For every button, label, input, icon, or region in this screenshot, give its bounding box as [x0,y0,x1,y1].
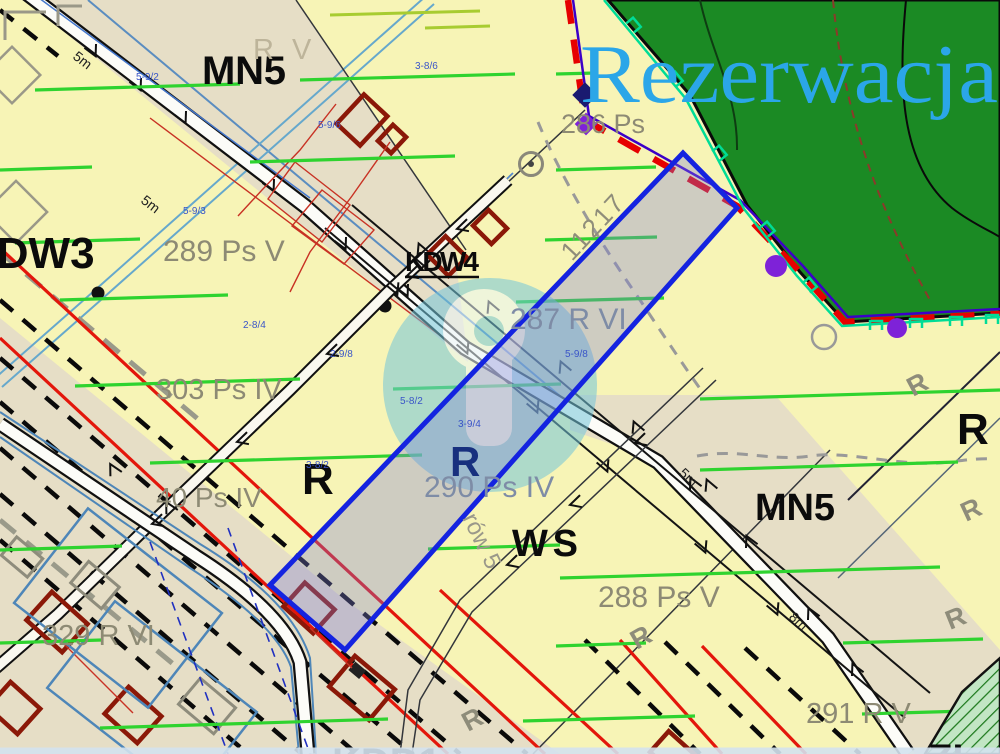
utility-label: 5-9/8 [565,349,588,360]
parcel-label-289: 289 Ps V [163,235,285,268]
zone-label-kdw3: KDW3 [0,229,95,278]
boundary-node-purple [887,318,907,338]
zone-label-kdw4: KDW4 [405,246,479,277]
utility-label: 5-8/2 [400,396,423,407]
parcel-label-329: 329 R VI [42,620,155,652]
parcel-label-290: 290 Ps IV [424,471,554,504]
zoning-map: MN5 MN5 KDW4 KDW3 R R R WS ZL KDD1 286 P… [0,0,1000,754]
parcel-label-303: 303 Ps IV [156,374,282,406]
boundary-node-purple [765,255,787,277]
parcel-label-288: 288 Ps V [598,581,720,614]
utility-label: 2-8/4 [243,320,266,331]
utility-label: 5-9/2 [136,72,159,83]
utility-label: 5-9/6 [318,120,341,131]
utility-label: 3-8/2 [306,460,329,471]
zone-label-mn5-right: MN5 [755,487,835,529]
parcel-label-40: 40 Ps IV [156,482,262,513]
utility-label: 3-8/6 [415,61,438,72]
utility-label: 5-9/3 [183,206,206,217]
bottom-edge-band [0,748,1000,754]
parcel-label-287: 287 R VI [510,303,627,336]
zone-label-r-right: R [957,405,989,454]
utility-label: 3-9/4 [458,419,481,430]
watermark-text: Rezerwacja [580,28,998,121]
utility-label: 2-9/8 [330,349,353,360]
parcel-label-faint: R V [253,34,316,66]
parcel-label-291: 291 R V [806,698,911,730]
zone-label-ws: WS [512,523,578,565]
